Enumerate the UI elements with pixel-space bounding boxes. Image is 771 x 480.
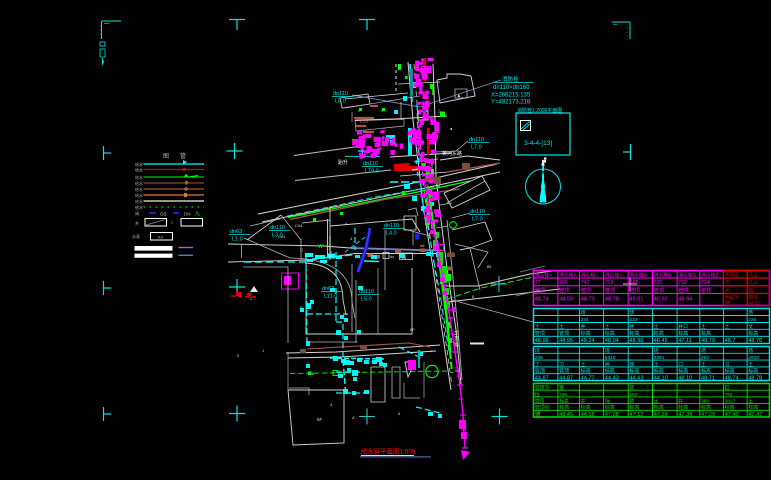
svg-text:土: 土: [725, 323, 730, 330]
svg-text:标高: 标高: [678, 404, 688, 411]
svg-text:标高: 标高: [748, 330, 758, 337]
svg-text:44.43: 44.43: [605, 375, 619, 381]
svg-text:管顶: 管顶: [535, 330, 545, 337]
svg-text:48.24: 48.24: [581, 338, 595, 344]
svg-text:47.24: 47.24: [654, 412, 668, 418]
svg-text:土: 土: [748, 361, 753, 368]
svg-text:管顶: 管顶: [654, 286, 664, 294]
svg-text:场: 场: [654, 347, 659, 354]
svg-text:图: 图: [163, 153, 169, 160]
svg-text:给水: 给水: [135, 186, 143, 192]
svg-text:习: 习: [559, 362, 564, 368]
svg-text:消火栓B: 消火栓B: [629, 272, 647, 279]
svg-text:标高: 标高: [654, 404, 664, 411]
svg-text:48.45: 48.45: [654, 338, 668, 344]
svg-text:742: 742: [581, 280, 590, 286]
svg-text:凡上: 凡上: [749, 272, 759, 279]
svg-text:场: 场: [535, 347, 540, 354]
svg-text:管顶: 管顶: [605, 286, 615, 294]
svg-text:∎: ∎: [450, 126, 453, 131]
svg-text:dn110: dn110: [469, 137, 484, 143]
svg-text:井: 井: [581, 398, 586, 405]
svg-text:47.11: 47.11: [678, 338, 692, 344]
svg-text:EUR: EUR: [360, 119, 369, 124]
svg-text:标高: 标高: [654, 330, 664, 337]
svg-text:47.28: 47.28: [605, 412, 619, 418]
svg-text:标高: 标高: [605, 330, 615, 337]
svg-text:给水: 给水: [135, 174, 143, 180]
svg-text:土: 土: [535, 323, 540, 330]
svg-text:给水: 给水: [135, 161, 143, 167]
svg-text:管顶沟: 管顶沟: [535, 384, 550, 391]
svg-text:管顶: 管顶: [535, 368, 545, 375]
svg-text:场: 场: [748, 309, 753, 316]
svg-text:234: 234: [581, 317, 589, 323]
svg-text:48.96: 48.96: [535, 338, 549, 344]
svg-text:dn110×dn160: dn110×dn160: [493, 85, 530, 91]
svg-text:给水: 给水: [135, 204, 143, 210]
svg-text:标高: 标高: [581, 330, 591, 337]
svg-text:48.79: 48.79: [701, 338, 715, 344]
svg-text:标高: 标高: [581, 368, 591, 375]
svg-text:习: 习: [725, 362, 730, 368]
svg-text:dn110: dn110: [270, 225, 285, 231]
svg-text:44.10: 44.10: [654, 375, 668, 381]
svg-text:3391: 3391: [654, 355, 665, 361]
svg-text:239: 239: [535, 355, 543, 361]
svg-text:48.71: 48.71: [701, 375, 715, 381]
svg-text:缸: 缸: [725, 384, 730, 391]
svg-text:管顶: 管顶: [559, 330, 569, 337]
svg-text:标高: 标高: [678, 368, 688, 375]
svg-text:井口: 井口: [678, 323, 688, 330]
svg-text:DN: DN: [184, 212, 191, 217]
svg-text:黄河东路: 黄河东路: [442, 150, 462, 157]
svg-text:土: 土: [654, 398, 659, 405]
svg-text:标高: 标高: [701, 368, 711, 375]
svg-text:W: W: [318, 244, 323, 250]
svg-text:▪▪▪▪: ▪▪▪▪: [613, 23, 617, 27]
svg-text:了: 了: [535, 361, 540, 368]
svg-text:标高: 标高: [629, 404, 639, 411]
svg-text:标高: 标高: [725, 368, 735, 375]
svg-text:48.76: 48.76: [748, 338, 762, 344]
svg-text:48.96: 48.96: [629, 338, 643, 344]
svg-text:水表: 水表: [132, 233, 140, 239]
svg-text:48.94: 48.94: [605, 338, 619, 344]
svg-text:♟: ♟: [457, 93, 461, 98]
svg-text:Δ: Δ: [352, 415, 355, 420]
svg-text:土: 土: [559, 323, 564, 330]
svg-text:标高: 标高: [559, 398, 569, 405]
svg-text:管顶: 管顶: [581, 286, 591, 294]
svg-text:44.87: 44.87: [559, 375, 573, 381]
svg-text:GB: GB: [160, 212, 167, 217]
svg-text:44.77: 44.77: [581, 375, 595, 381]
svg-text:井: 井: [605, 361, 610, 368]
svg-text:48.92: 48.92: [654, 297, 668, 303]
svg-text:47.40: 47.40: [725, 412, 739, 418]
svg-text:48.94: 48.94: [678, 297, 692, 303]
svg-text:44.58: 44.58: [581, 412, 595, 418]
svg-text:6F: 6F: [410, 327, 415, 332]
svg-text:土: 土: [748, 398, 753, 405]
svg-text:辅: 辅: [535, 410, 541, 418]
svg-text:水.: 水.: [725, 287, 731, 293]
svg-text:标高: 标高: [605, 368, 615, 375]
svg-text:6F: 6F: [317, 417, 323, 422]
svg-text:消火栓A: 消火栓A: [581, 272, 599, 279]
svg-text:2818: 2818: [748, 355, 759, 361]
svg-text:734: 734: [701, 280, 710, 286]
svg-text:3-4-4-[13]: 3-4-4-[13]: [524, 140, 552, 147]
svg-text:标高: 标高: [678, 330, 688, 337]
svg-text:48.10: 48.10: [678, 375, 692, 381]
svg-text:8: 8: [472, 295, 474, 299]
svg-text:标高: 标高: [701, 330, 711, 337]
svg-text:▪: ▪: [627, 34, 628, 38]
svg-text:B5: B5: [487, 265, 491, 269]
svg-text:拉: 拉: [535, 391, 540, 398]
svg-text:762: 762: [725, 392, 733, 398]
svg-text:消火栓B: 消火栓B: [654, 272, 672, 279]
svg-text:管顶: 管顶: [701, 286, 711, 294]
svg-text:管顶: 管顶: [559, 368, 569, 375]
svg-text:dn110: dn110: [333, 91, 348, 97]
svg-text:消火栓B: 消火栓B: [678, 272, 696, 279]
svg-text:消防栓: 消防栓: [502, 75, 519, 83]
svg-text:标高: 标高: [654, 368, 664, 375]
svg-text:井: 井: [678, 398, 683, 405]
svg-text:700: 700: [559, 392, 567, 398]
svg-text:管顶标: 管顶标: [535, 404, 550, 411]
svg-text:土: 土: [605, 323, 610, 330]
svg-text:360: 360: [701, 399, 709, 405]
svg-text:阀: 阀: [135, 210, 139, 216]
svg-text:标高: 标高: [701, 404, 711, 411]
svg-text:502: 502: [629, 392, 637, 398]
svg-text:消火栓A: 消火栓A: [605, 272, 623, 279]
svg-text:dn110: dn110: [385, 249, 395, 253]
svg-text:不同段: 不同段: [725, 272, 739, 279]
svg-text:L1.0: L1.0: [232, 237, 243, 243]
svg-text:管顶: 管顶: [535, 398, 545, 405]
svg-text:48.95: 48.95: [559, 338, 573, 344]
svg-text:dn110: dn110: [470, 209, 485, 215]
svg-text:管: 管: [725, 300, 730, 307]
svg-text:给水管平面图1:500: 给水管平面图1:500: [361, 447, 416, 456]
svg-text:土: 土: [654, 361, 659, 368]
svg-text:标高: 标高: [629, 368, 639, 375]
svg-text:L4.0: L4.0: [386, 231, 397, 237]
svg-text:管: 管: [180, 152, 186, 160]
svg-text:48.93: 48.93: [559, 297, 573, 303]
svg-text:3827: 3827: [725, 399, 736, 405]
svg-text:48.78: 48.78: [605, 297, 619, 303]
svg-text:管: 管: [629, 398, 634, 405]
svg-text:管顶: 管顶: [678, 286, 688, 294]
svg-text:47.29: 47.29: [701, 412, 715, 418]
svg-text:48.78: 48.78: [748, 375, 762, 381]
svg-text:场: 场: [605, 398, 610, 405]
svg-text:77: 77: [535, 280, 541, 286]
svg-text:L5.0: L5.0: [361, 297, 372, 303]
svg-text:跆升: 跆升: [338, 159, 348, 166]
svg-text:47.12: 47.12: [629, 412, 643, 418]
svg-text:732: 732: [678, 280, 687, 286]
svg-text:L11.0: L11.0: [324, 294, 337, 300]
svg-text:44.87: 44.87: [535, 375, 549, 381]
svg-text:给水: 给水: [135, 198, 143, 204]
svg-text:给水: 给水: [135, 180, 143, 186]
svg-text:◻: ◻: [300, 247, 303, 252]
svg-text:Y=482173.218: Y=482173.218: [491, 100, 531, 106]
svg-text:锥: 锥: [559, 384, 564, 391]
svg-text:场: 场: [629, 361, 634, 368]
svg-text:丈: 丈: [748, 323, 753, 330]
svg-text:标高: 标高: [748, 368, 758, 375]
svg-text:A4: A4: [158, 235, 164, 240]
svg-text:消火栓B: 消火栓B: [701, 272, 719, 279]
svg-text:凡山: 凡山: [749, 279, 759, 286]
svg-text:场: 场: [605, 347, 610, 354]
svg-text:L8.0: L8.0: [335, 99, 346, 105]
svg-text:L3.0: L3.0: [272, 233, 283, 239]
svg-text:47.47: 47.47: [748, 412, 762, 418]
svg-text:给水: 给水: [135, 192, 143, 198]
svg-text:井: 井: [135, 220, 139, 226]
svg-text:282: 282: [701, 355, 709, 361]
svg-text:ds: ds: [390, 254, 394, 259]
svg-text:▪▪▪▪▪: ▪▪▪▪▪: [104, 22, 109, 26]
svg-text:管: 管: [629, 384, 634, 391]
svg-text:48.45: 48.45: [559, 412, 573, 418]
svg-text:L7.0: L7.0: [471, 145, 482, 151]
svg-text:标高: 标高: [559, 404, 569, 411]
svg-text:dn63: dn63: [322, 286, 334, 292]
svg-text:口: 口: [678, 362, 683, 368]
svg-text:48.73: 48.73: [581, 297, 595, 303]
svg-text:C64: C64: [295, 223, 303, 228]
svg-text:48.74: 48.74: [725, 375, 739, 381]
svg-text:233: 233: [629, 317, 637, 323]
svg-text:dn110: dn110: [359, 289, 374, 295]
svg-text:44.67: 44.67: [749, 301, 761, 306]
svg-text:土: 土: [581, 361, 586, 368]
svg-text:dn63: dn63: [230, 229, 242, 235]
svg-text:765: 765: [559, 280, 568, 286]
svg-text:标高: 标高: [581, 404, 591, 411]
svg-text:44.43: 44.43: [629, 375, 643, 381]
svg-text:dn110: dn110: [363, 161, 378, 167]
svg-text:731: 731: [654, 280, 663, 286]
svg-text:土: 土: [654, 323, 659, 330]
svg-text:管顶: 管顶: [559, 286, 569, 294]
svg-text:场: 场: [748, 347, 753, 354]
svg-text:井: 井: [629, 323, 634, 330]
svg-text:X=266215.135: X=266215.135: [491, 93, 531, 99]
svg-text:719: 719: [605, 280, 614, 286]
svg-text:225: 225: [748, 317, 756, 323]
svg-text:标高: 标高: [629, 330, 639, 337]
svg-text:井: 井: [581, 323, 586, 330]
svg-text:48.7: 48.7: [725, 338, 736, 344]
svg-text:管顶: 管顶: [629, 286, 639, 294]
svg-text:土: 土: [701, 323, 706, 330]
svg-text:dn110: dn110: [384, 223, 399, 229]
svg-text:场: 场: [581, 309, 586, 316]
svg-text:场: 场: [629, 309, 634, 316]
svg-text:n6: n6: [420, 243, 425, 248]
svg-text:741: 741: [629, 280, 638, 286]
svg-text:标高: 标高: [605, 404, 615, 411]
svg-text:消火栓A: 消火栓A: [535, 272, 553, 279]
svg-text:5310: 5310: [605, 355, 616, 361]
svg-text:给水: 给水: [135, 167, 143, 173]
svg-text:48.81: 48.81: [629, 297, 643, 303]
svg-text:47.34: 47.34: [678, 412, 692, 418]
svg-text:n: n: [330, 249, 332, 254]
svg-text:土: 土: [701, 361, 706, 368]
svg-text:48.74: 48.74: [535, 297, 549, 303]
svg-text:L7.0: L7.0: [472, 217, 483, 223]
svg-text:消火栓A: 消火栓A: [559, 272, 577, 279]
svg-text:标高: 标高: [725, 404, 735, 411]
svg-text:LT9.0: LT9.0: [365, 169, 379, 175]
svg-text:标高: 标高: [748, 404, 758, 411]
svg-text:场: 场: [701, 347, 706, 354]
svg-text:▪: ▪: [100, 32, 101, 36]
